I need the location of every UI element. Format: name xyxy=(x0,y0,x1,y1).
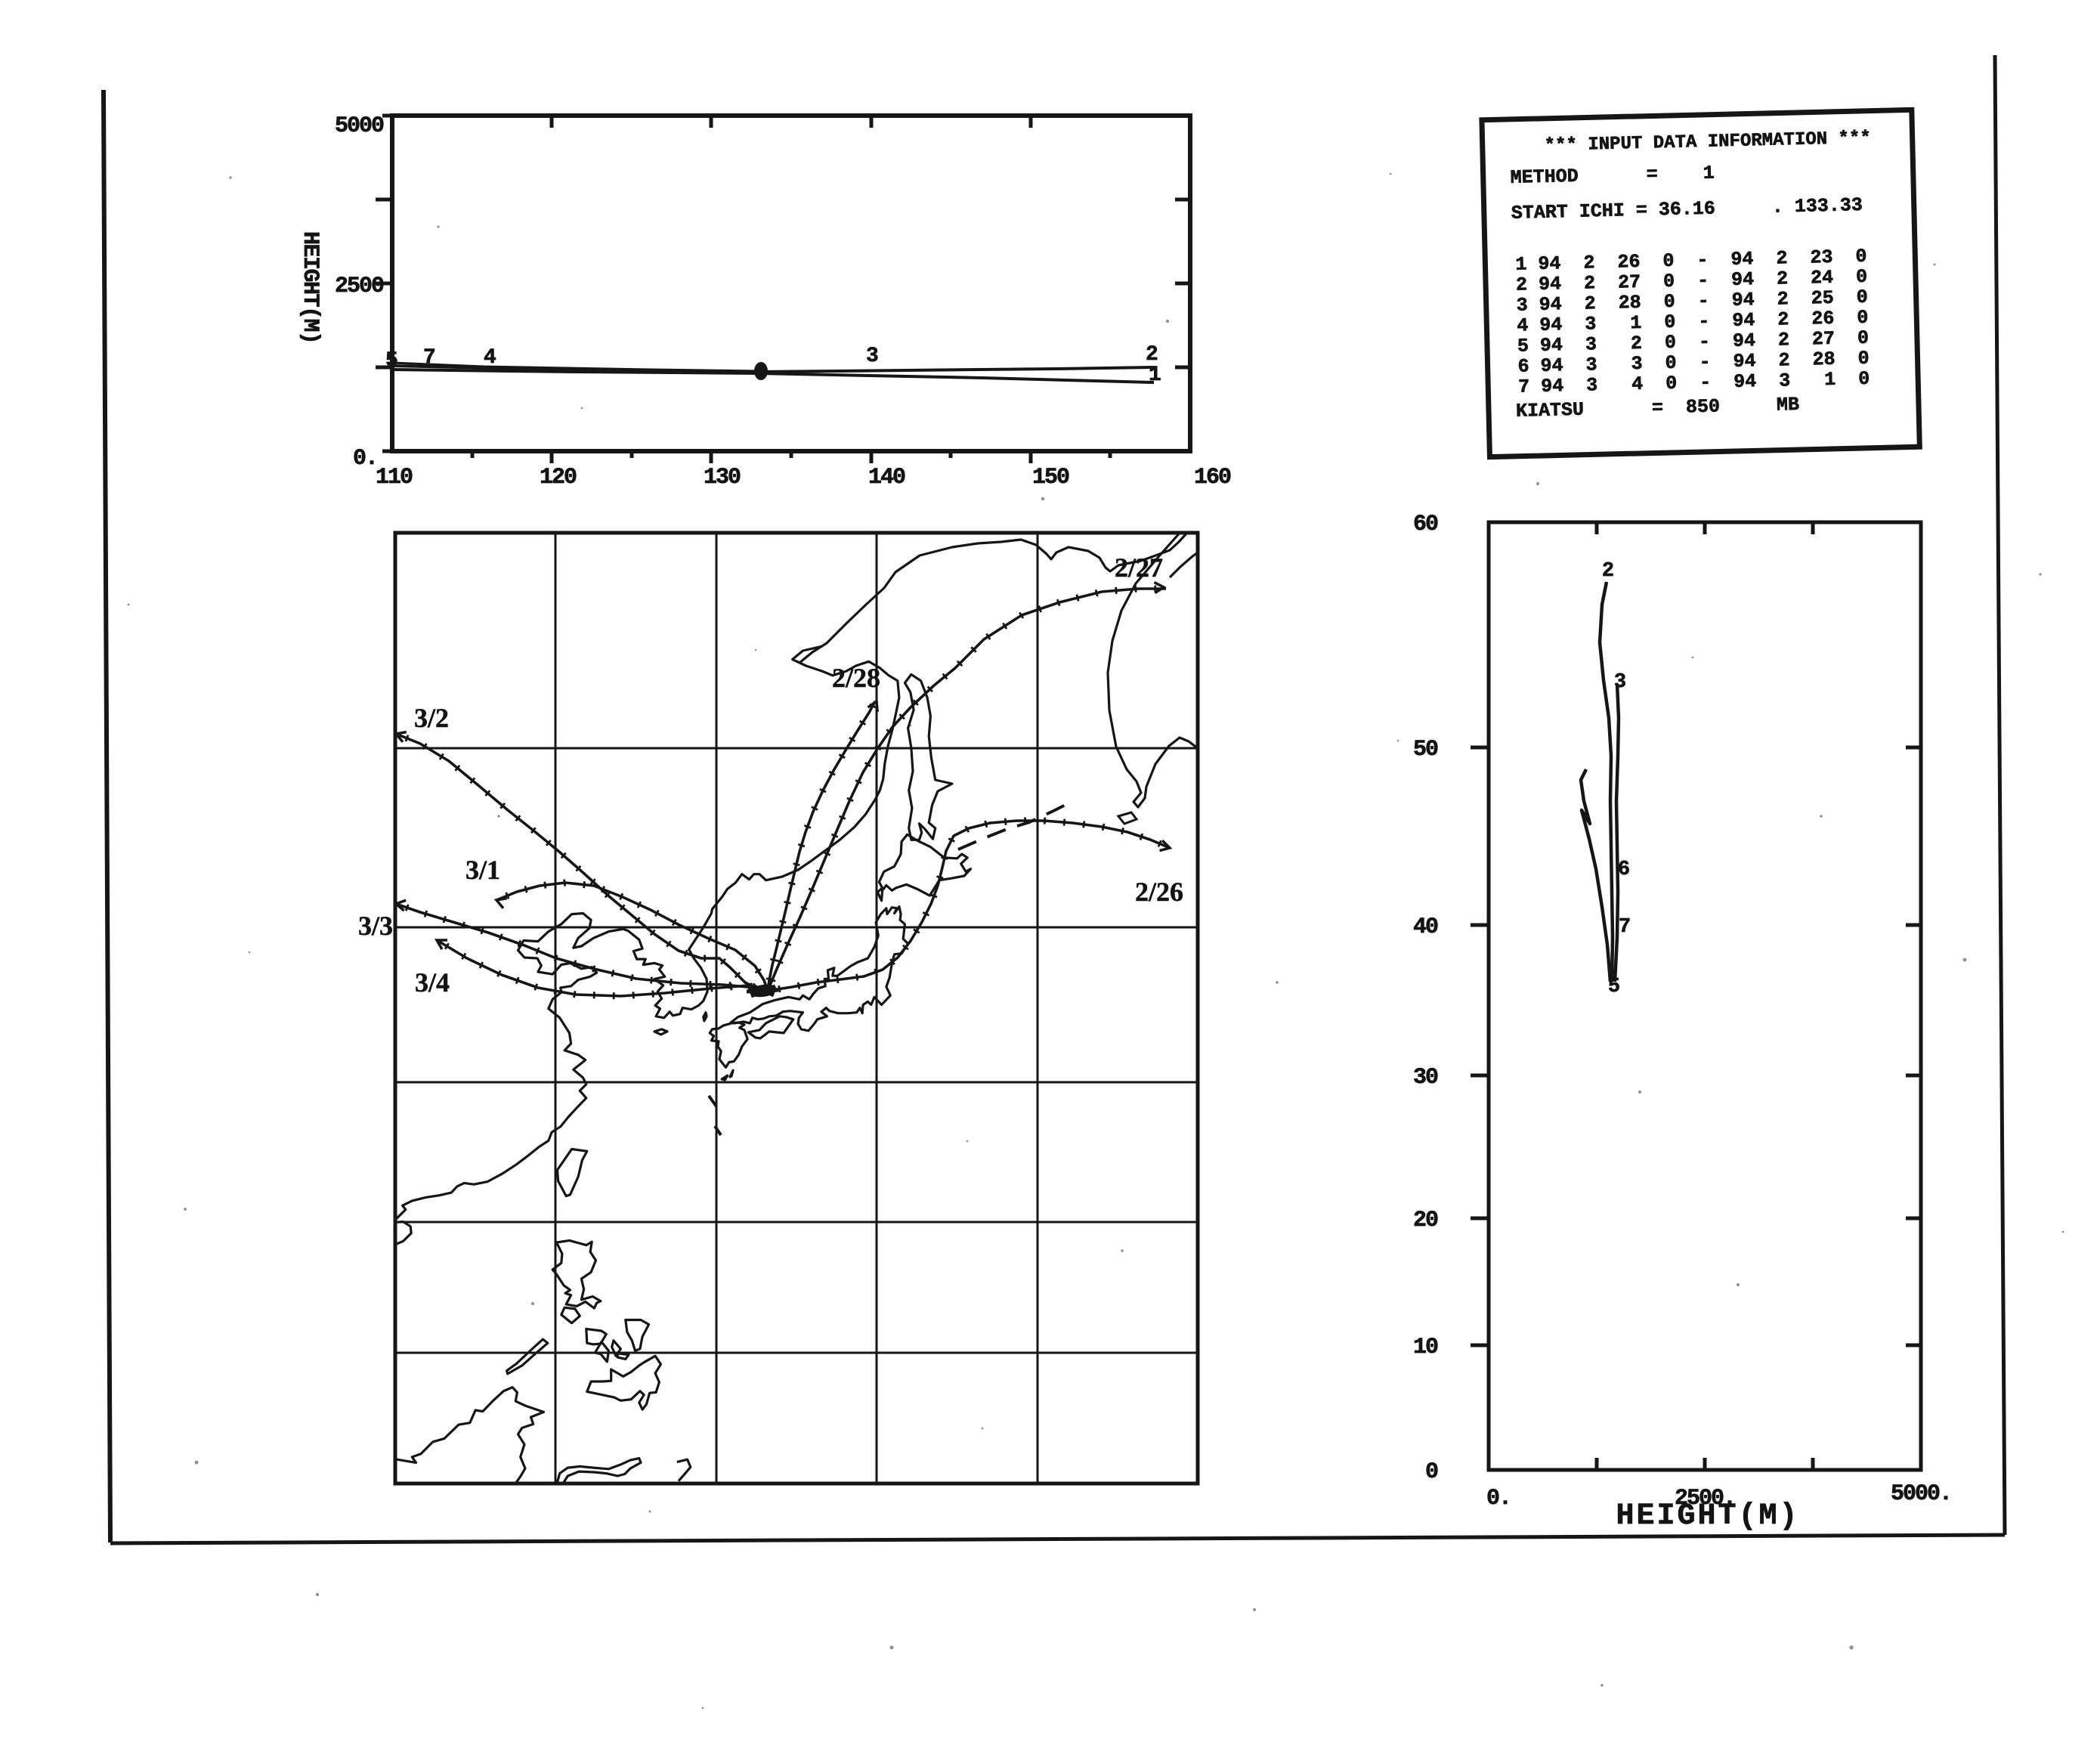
svg-text:2500: 2500 xyxy=(335,274,384,299)
svg-text:40: 40 xyxy=(1413,914,1438,940)
svg-text:3/2: 3/2 xyxy=(414,703,449,733)
svg-text:120: 120 xyxy=(540,465,577,490)
svg-text:3: 3 xyxy=(1614,671,1626,694)
svg-text:4: 4 xyxy=(484,346,496,370)
svg-text:30: 30 xyxy=(1413,1065,1438,1091)
svg-text:1: 1 xyxy=(1149,364,1161,387)
svg-text:5: 5 xyxy=(385,349,398,373)
svg-text:50: 50 xyxy=(1413,737,1438,763)
svg-text:60: 60 xyxy=(1413,512,1438,537)
svg-text:3/3: 3/3 xyxy=(358,911,393,941)
svg-text:5: 5 xyxy=(1608,976,1620,998)
svg-text:20: 20 xyxy=(1413,1208,1438,1233)
svg-text:0: 0 xyxy=(1425,1459,1438,1485)
svg-text:2/26: 2/26 xyxy=(1135,877,1183,907)
svg-text:5000: 5000 xyxy=(335,113,384,139)
svg-text:2: 2 xyxy=(1602,560,1614,583)
svg-text:6: 6 xyxy=(1618,859,1630,881)
svg-text:130: 130 xyxy=(704,465,741,490)
svg-text:2/28: 2/28 xyxy=(832,663,880,693)
svg-text:7: 7 xyxy=(1619,916,1631,939)
svg-text:0.: 0. xyxy=(353,446,377,472)
svg-text:HEIGHT(M): HEIGHT(M) xyxy=(1616,1499,1799,1533)
svg-text:2/27: 2/27 xyxy=(1115,552,1163,583)
svg-text:140: 140 xyxy=(868,465,905,490)
svg-text:7: 7 xyxy=(423,346,436,370)
svg-text:3: 3 xyxy=(866,345,879,368)
svg-text:10: 10 xyxy=(1413,1335,1438,1360)
svg-text:3/1: 3/1 xyxy=(465,855,500,885)
svg-text:HEIGHT(M): HEIGHT(M) xyxy=(297,231,323,344)
svg-text:0.: 0. xyxy=(1486,1486,1511,1511)
svg-text:3/4: 3/4 xyxy=(415,967,450,998)
svg-text:150: 150 xyxy=(1032,465,1069,490)
svg-text:160: 160 xyxy=(1194,465,1231,490)
svg-text:5000.: 5000. xyxy=(1891,1481,1951,1507)
svg-text:110: 110 xyxy=(376,465,413,490)
